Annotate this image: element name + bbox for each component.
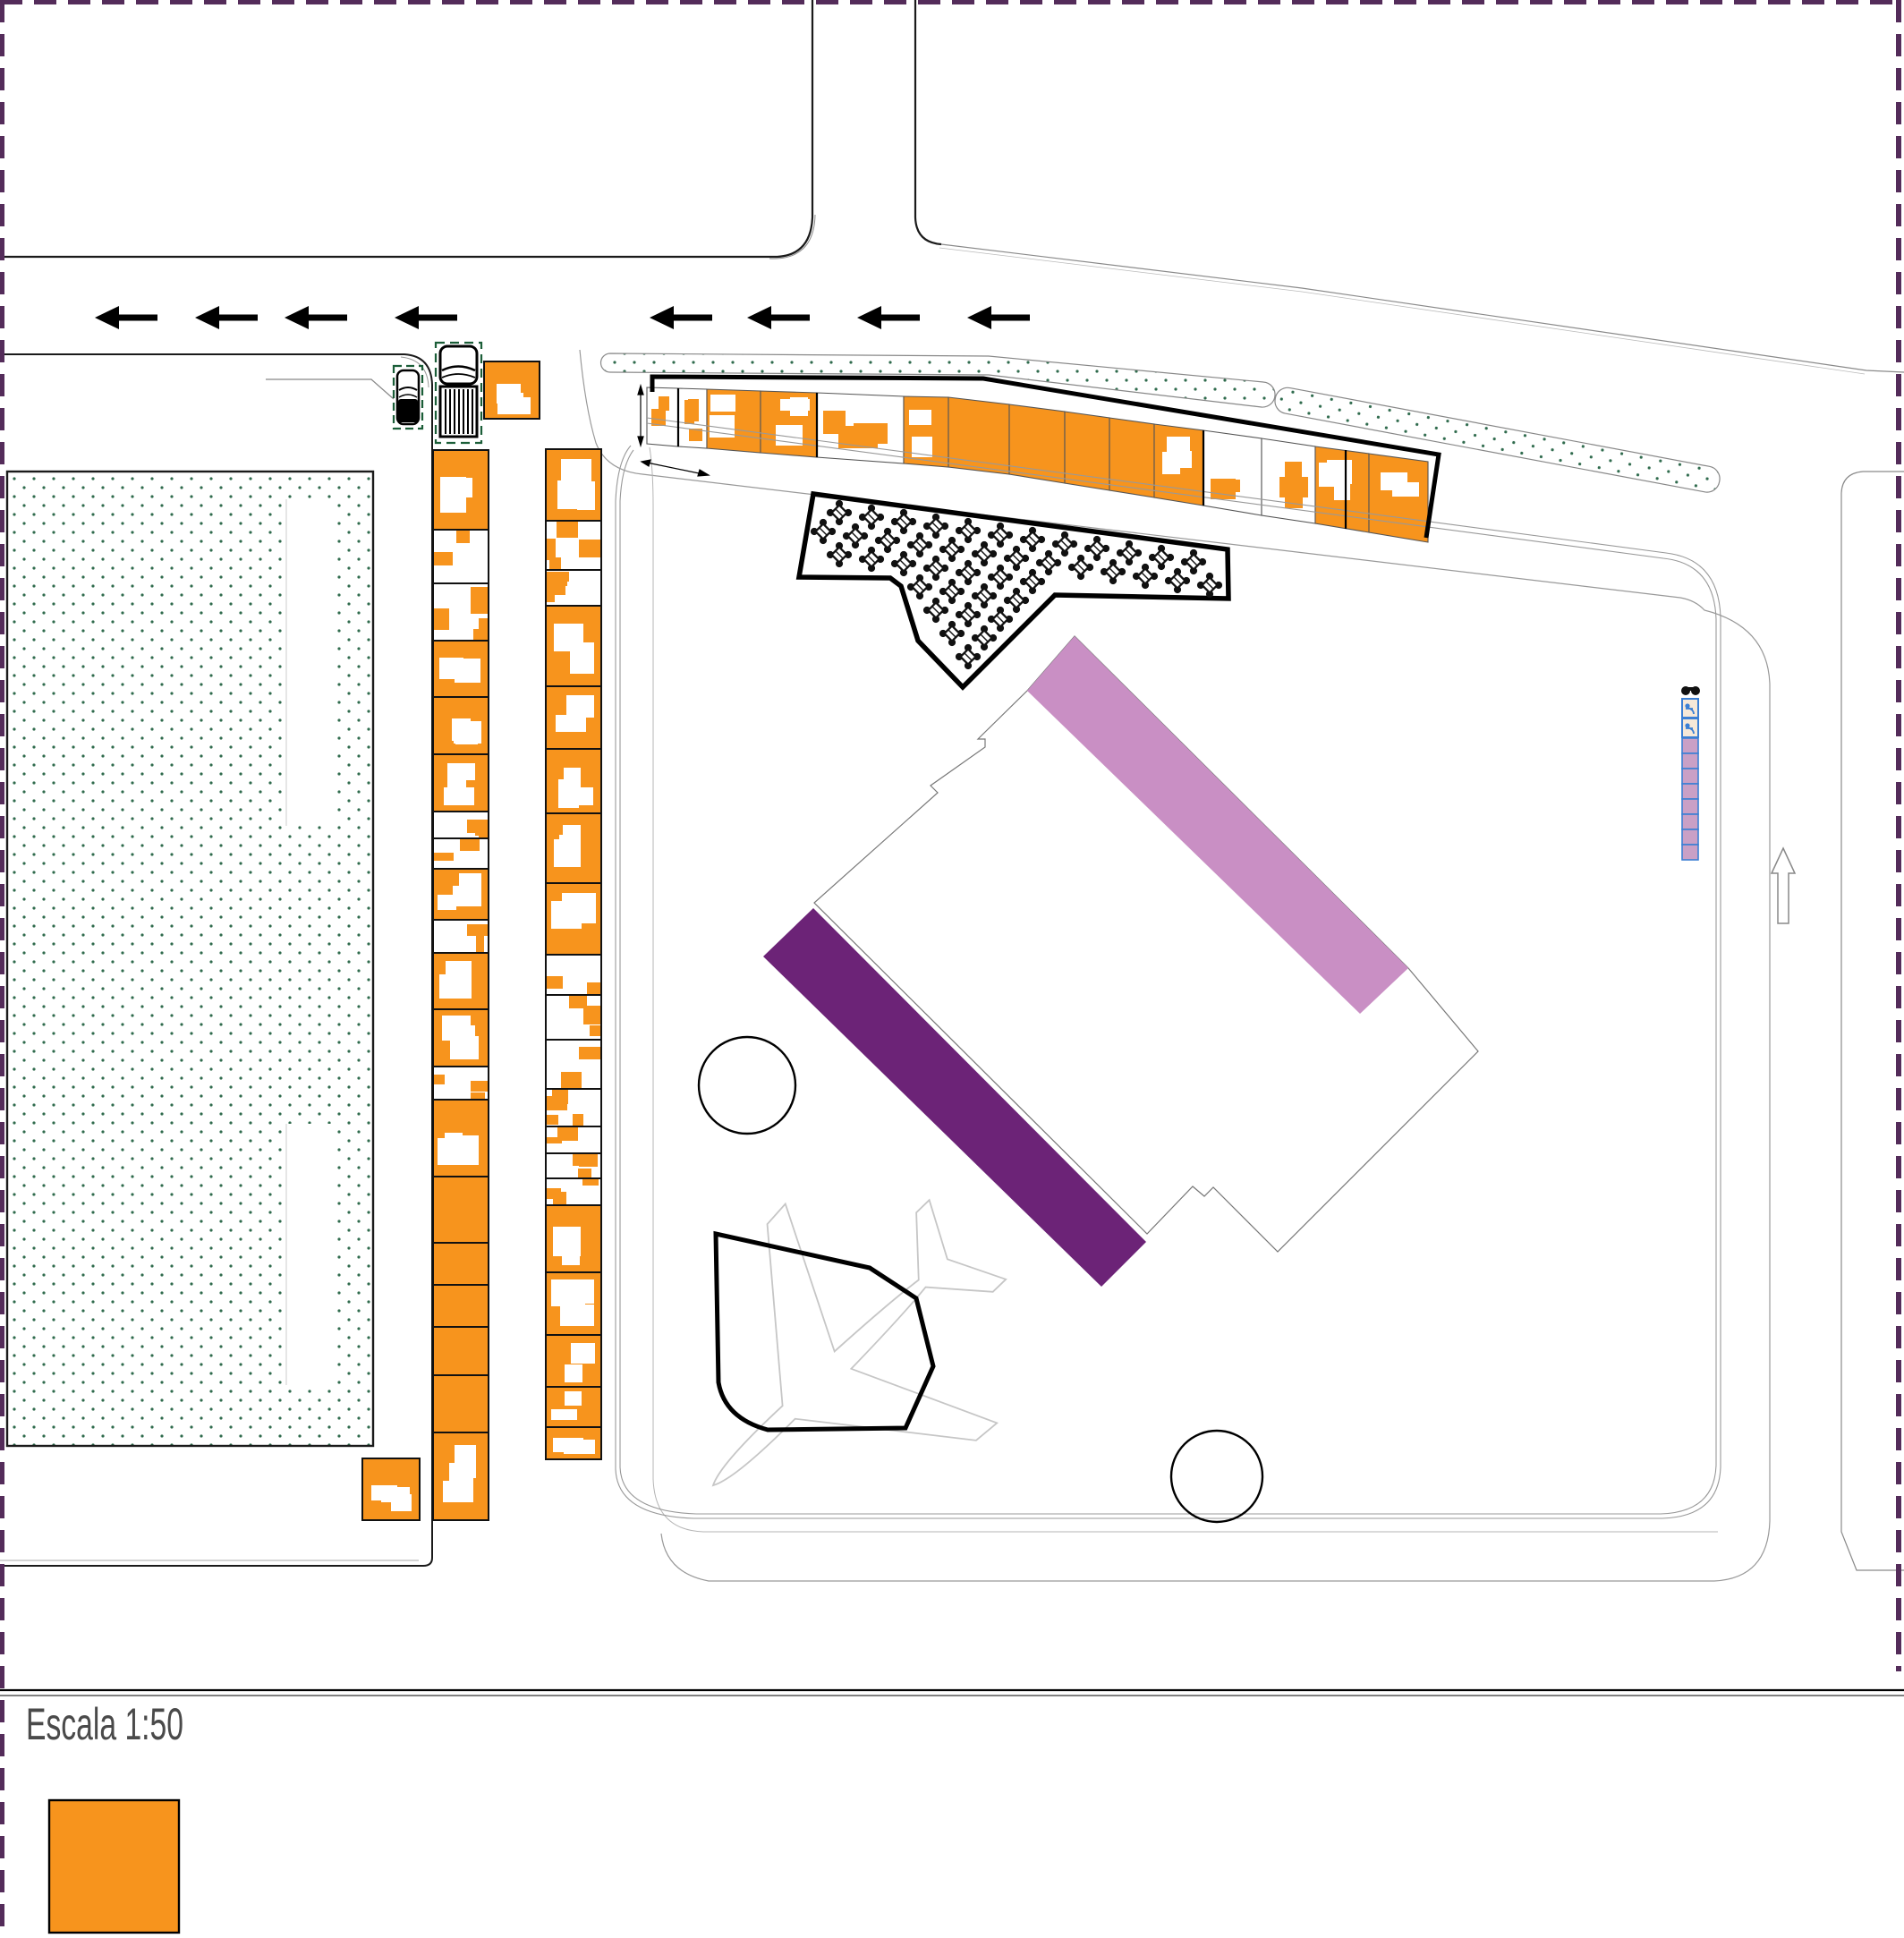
svg-text:Escala 1:50: Escala 1:50 (26, 1699, 183, 1749)
